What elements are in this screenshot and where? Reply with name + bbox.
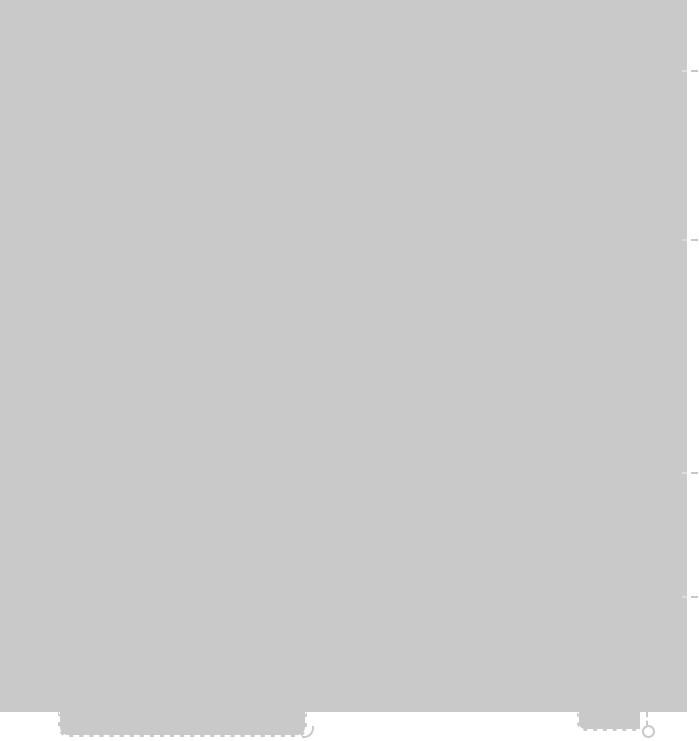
edge-tick-marker xyxy=(682,239,687,241)
margin-dash-marker xyxy=(691,239,698,241)
margin-dash-marker xyxy=(691,596,698,598)
dashed-connector-line xyxy=(646,712,648,726)
content-overlay xyxy=(0,0,687,712)
edge-tick-marker xyxy=(682,70,687,72)
edge-tick-marker xyxy=(682,596,687,598)
app-window xyxy=(0,0,699,741)
drag-handle-ring[interactable] xyxy=(642,725,655,738)
bottom-tab-primary[interactable] xyxy=(58,712,307,737)
bottom-tab-secondary[interactable] xyxy=(577,712,640,731)
margin-dash-marker xyxy=(691,472,698,474)
edge-tick-marker xyxy=(682,472,687,474)
margin-dash-marker xyxy=(691,70,698,72)
tab-corner-arc xyxy=(302,726,314,738)
